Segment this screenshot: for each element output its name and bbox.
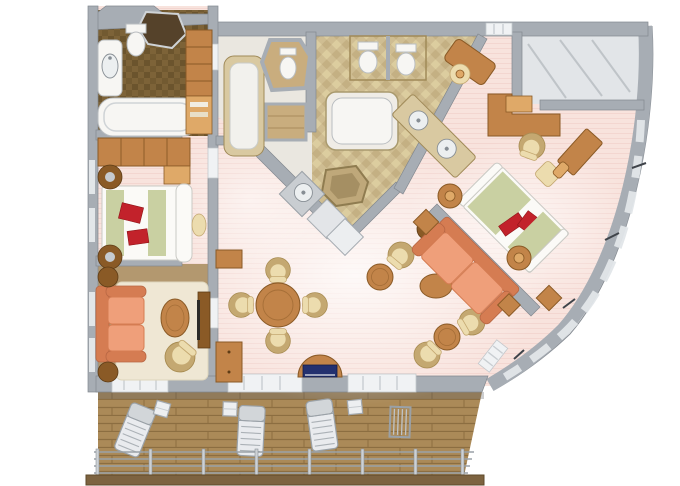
side-table [434, 324, 460, 350]
toilet-tank [358, 42, 378, 50]
side-table [367, 264, 393, 290]
walk-in-closet-floor [516, 36, 644, 104]
dining-chair [303, 293, 328, 318]
sideboard [216, 250, 242, 268]
top-wall [210, 22, 648, 36]
wc-toilet [280, 57, 296, 79]
dining-chair [266, 329, 291, 354]
dining-chair [229, 293, 254, 318]
wc-tank [280, 48, 296, 55]
deck-side-table [223, 402, 237, 416]
entry-door-threshold [486, 23, 512, 35]
side-table [98, 362, 118, 382]
floor-plan-image: Top-down 3D floor plan of a cruise-ship … [0, 0, 680, 486]
red-pillow [127, 229, 149, 246]
loveseat [96, 286, 146, 362]
closet-south-wall [540, 100, 644, 110]
dining-chair [266, 258, 291, 283]
linen-shelves [186, 30, 212, 96]
toilet [127, 32, 145, 56]
wardrobe-return [164, 166, 190, 184]
guest-bedroom [98, 138, 206, 269]
veranda-deck [86, 392, 484, 485]
guest-sitting-room [96, 267, 210, 382]
linen-nook [266, 104, 306, 140]
balcony-door-threshold [348, 374, 416, 392]
toilet [359, 51, 377, 73]
headboard [176, 184, 192, 262]
suite-floor-plan: Top-down 3D floor plan of a cruise-ship … [0, 0, 680, 486]
railing-cap [86, 475, 484, 485]
deck-lounger [237, 405, 266, 456]
deck-side-table [153, 400, 170, 417]
side-table [98, 267, 118, 287]
wing-wall [208, 178, 218, 298]
desk-shelf [506, 96, 532, 112]
bathtub [332, 98, 392, 144]
tv-screen [197, 300, 200, 340]
whirlpool-tub [230, 63, 258, 149]
cabinet [216, 342, 242, 382]
bench-stool [192, 214, 206, 236]
bidet-tank [396, 44, 416, 52]
bidet [397, 53, 415, 75]
